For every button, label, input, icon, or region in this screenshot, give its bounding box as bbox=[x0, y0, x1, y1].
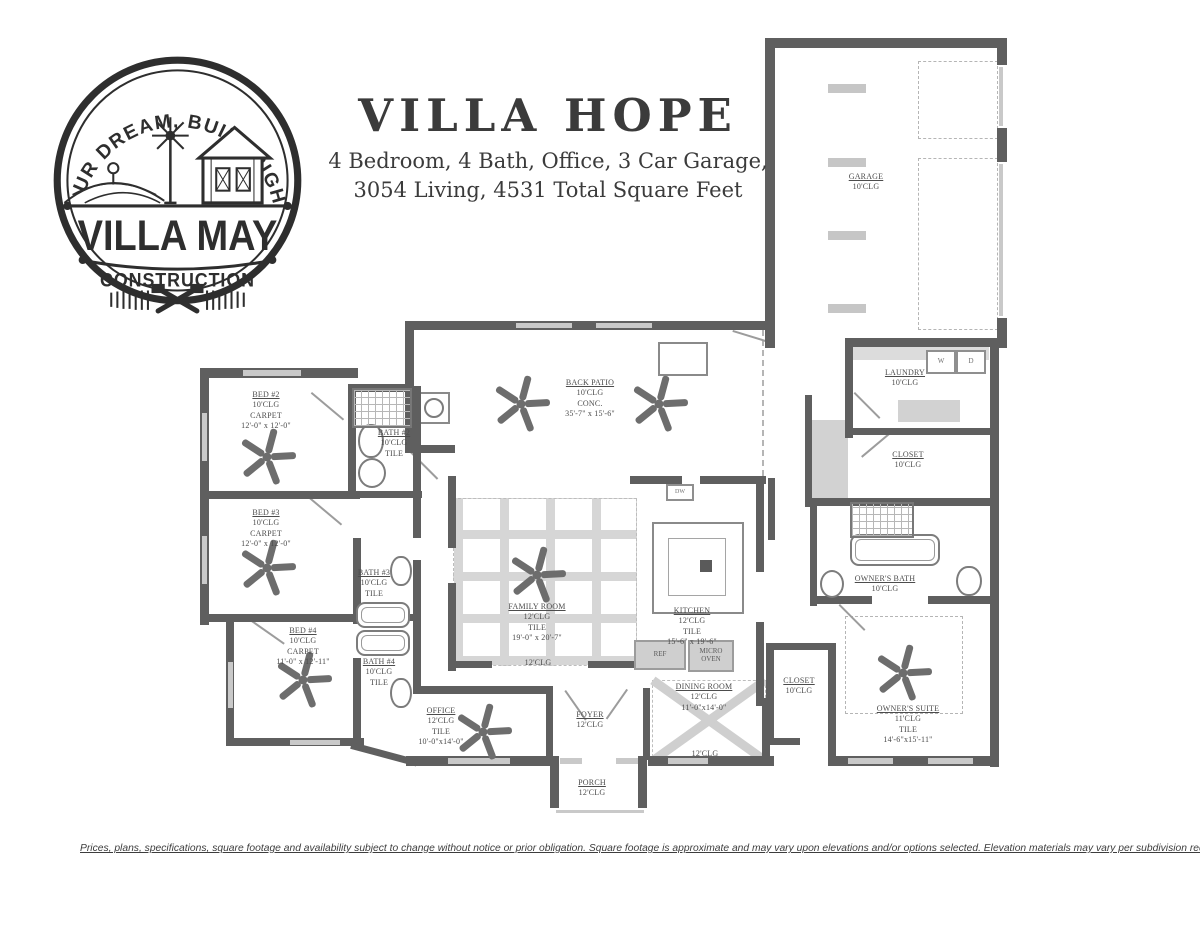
hall-ceiling-label: 12'CLG bbox=[508, 658, 568, 668]
wall-segment bbox=[845, 338, 853, 438]
dashed-outline bbox=[918, 158, 998, 330]
room-name: CLOSET bbox=[863, 450, 953, 460]
wall-segment bbox=[762, 698, 770, 760]
wall-segment bbox=[765, 38, 1007, 48]
wall-segment bbox=[766, 643, 836, 650]
wall-segment bbox=[413, 492, 421, 538]
garage-ceiling-beam bbox=[828, 158, 866, 167]
room-name: BACK PATIO bbox=[538, 378, 642, 388]
door-swing-line bbox=[854, 392, 881, 419]
banner-bolt-left bbox=[79, 256, 87, 264]
laundry-folding-counter bbox=[898, 400, 960, 422]
wall-segment bbox=[200, 491, 360, 499]
room-detail: CARPET bbox=[216, 529, 316, 539]
window-marker bbox=[556, 810, 644, 813]
wall-segment bbox=[448, 661, 492, 668]
window-marker bbox=[290, 740, 340, 745]
room-detail: 10'CLG bbox=[358, 438, 430, 448]
room-detail: TILE bbox=[358, 449, 430, 459]
room-label-bath4: BATH #4 10'CLG TILE bbox=[348, 657, 410, 688]
villa-may-logo: YOUR DREAM, BUILT RIGHT. bbox=[50, 50, 305, 315]
room-detail: 11'CLG bbox=[848, 714, 968, 724]
room-name: BATH #4 bbox=[348, 657, 410, 667]
wall-segment bbox=[638, 756, 647, 808]
room-name: OFFICE bbox=[404, 706, 478, 716]
water-heater-icon bbox=[424, 398, 444, 418]
wall-segment bbox=[405, 321, 775, 330]
wall-segment bbox=[997, 128, 1007, 162]
room-label-garage: GARAGE 10'CLG bbox=[826, 172, 906, 193]
wall-segment bbox=[448, 476, 456, 548]
room-detail: 10'CLG bbox=[835, 584, 935, 594]
logo-subbrand: CONSTRUCTION bbox=[100, 269, 255, 291]
room-detail: CONC. bbox=[538, 399, 642, 409]
wall-segment bbox=[805, 395, 812, 507]
room-label-dining: DINING ROOM 12'CLG 11'-0"x14'-0" bbox=[652, 682, 756, 713]
room-detail: 12'CLG bbox=[642, 616, 742, 626]
room-label-family-room: FAMILY ROOM 12'CLG TILE 19'-0" x 20'-7" bbox=[477, 602, 597, 644]
floor-plan-page: YOUR DREAM, BUILT RIGHT. bbox=[0, 0, 1200, 927]
room-label-bath3: BATH #3 10'CLG TILE bbox=[343, 568, 405, 599]
room-label-owners-bath: OWNER'S BATH 10'CLG bbox=[835, 574, 935, 595]
room-detail: 12'CLG bbox=[404, 716, 478, 726]
wall-segment bbox=[928, 596, 994, 604]
room-name: LAUNDRY bbox=[860, 368, 950, 378]
wall-segment bbox=[756, 622, 764, 706]
wall-segment bbox=[990, 347, 999, 767]
bathtub-icon bbox=[356, 602, 410, 628]
room-detail: CARPET bbox=[216, 411, 316, 421]
kitchen-sink-icon bbox=[700, 560, 712, 572]
wall-segment bbox=[810, 498, 817, 606]
window-marker bbox=[999, 67, 1003, 126]
room-label-office: OFFICE 12'CLG TILE 10'-0"x14'-0" bbox=[404, 706, 478, 748]
room-detail: 10'CLG bbox=[216, 518, 316, 528]
room-label-owners-suite: OWNER'S SUITE 11'CLG TILE 14'-6"x15'-11" bbox=[848, 704, 968, 746]
wall-segment bbox=[756, 476, 764, 572]
room-detail: 10'CLG bbox=[768, 686, 830, 696]
wall-segment bbox=[810, 596, 872, 604]
room-detail: TILE bbox=[348, 678, 410, 688]
ref-label: REF bbox=[654, 651, 667, 659]
wall-segment bbox=[768, 478, 775, 540]
room-detail: 10'CLG bbox=[863, 460, 953, 470]
room-detail: 11'-0" x 12'-11" bbox=[253, 657, 353, 667]
room-detail: 35'-7" x 15'-6" bbox=[538, 409, 642, 419]
room-detail: 10'CLG bbox=[348, 667, 410, 677]
room-detail: 10'CLG bbox=[860, 378, 950, 388]
dryer-box: D bbox=[956, 350, 986, 374]
room-detail: 14'-6"x15'-11" bbox=[848, 735, 968, 745]
window-marker bbox=[516, 323, 572, 328]
room-name: OWNER'S BATH bbox=[835, 574, 935, 584]
patio-island bbox=[658, 342, 708, 376]
room-name: CLOSET bbox=[768, 676, 830, 686]
room-label-bed3: BED #3 10'CLG CARPET 12'-0" x 12'-0" bbox=[216, 508, 316, 550]
wall-segment bbox=[845, 338, 1005, 347]
window-marker bbox=[928, 758, 973, 764]
room-label-bath2: BATH #2 10'CLG TILE bbox=[358, 428, 430, 459]
room-detail: 19'-0" x 20'-7" bbox=[477, 633, 597, 643]
wall-segment bbox=[828, 738, 836, 766]
room-name: BED #4 bbox=[253, 626, 353, 636]
room-label-foyer: FOYER 12'CLG bbox=[555, 710, 625, 731]
wall-segment bbox=[852, 428, 992, 435]
window-marker bbox=[243, 370, 301, 376]
garage-ceiling-beam bbox=[828, 304, 866, 313]
room-label-porch: PORCH 12'CLG bbox=[557, 778, 627, 799]
room-detail: TILE bbox=[404, 727, 478, 737]
room-detail: TILE bbox=[343, 589, 405, 599]
room-detail: 10'CLG bbox=[538, 388, 642, 398]
room-detail: 10'-0"x14'-0" bbox=[404, 737, 478, 747]
oven-label: OVEN bbox=[701, 656, 720, 664]
window-marker bbox=[596, 323, 652, 328]
dashed-outline bbox=[918, 61, 998, 139]
room-detail: 11'-0"x14'-0" bbox=[652, 703, 756, 713]
dashed-line bbox=[762, 330, 764, 476]
room-name: FOYER bbox=[555, 710, 625, 720]
window-marker bbox=[228, 662, 233, 708]
room-name: BED #2 bbox=[216, 390, 316, 400]
subtitle-line2: 3054 Living, 4531 Total Square Feet bbox=[354, 178, 743, 202]
mud-bench bbox=[812, 420, 848, 498]
toilet-icon bbox=[956, 566, 982, 596]
room-detail: 12'CLG bbox=[652, 692, 756, 702]
ceiling-fan-icon bbox=[872, 642, 934, 704]
bathtub-icon bbox=[356, 630, 410, 656]
dw-label: DW bbox=[675, 489, 685, 496]
plan-header: VILLA HOPE 4 Bedroom, 4 Bath, Office, 3 … bbox=[318, 92, 778, 204]
room-label-bed4: BED #4 10'CLG CARPET 11'-0" x 12'-11" bbox=[253, 626, 353, 668]
wall-segment bbox=[413, 560, 421, 688]
room-detail: TILE bbox=[642, 627, 742, 637]
room-name: BATH #2 bbox=[358, 428, 430, 438]
sink-icon bbox=[358, 458, 386, 488]
room-detail: 10'CLG bbox=[216, 400, 316, 410]
wall-segment bbox=[448, 583, 456, 671]
room-name: KITCHEN bbox=[642, 606, 742, 616]
dishwasher-box: DW bbox=[666, 484, 694, 501]
washer-label: W bbox=[938, 358, 945, 366]
room-detail: TILE bbox=[477, 623, 597, 633]
room-label-laundry: LAUNDRY 10'CLG bbox=[860, 368, 950, 389]
wall-segment bbox=[997, 38, 1007, 65]
window-marker bbox=[616, 758, 638, 764]
room-detail: 10'CLG bbox=[253, 636, 353, 646]
window-marker bbox=[848, 758, 893, 764]
plan-subtitle: 4 Bedroom, 4 Bath, Office, 3 Car Garage,… bbox=[318, 147, 778, 204]
wall-segment bbox=[413, 686, 553, 694]
room-name: BATH #3 bbox=[343, 568, 405, 578]
ceiling-fan-icon bbox=[506, 544, 568, 606]
wall-segment bbox=[630, 476, 682, 484]
room-detail: TILE bbox=[848, 725, 968, 735]
shower-icon bbox=[850, 502, 914, 538]
room-name: OWNER'S SUITE bbox=[848, 704, 968, 714]
room-label-bed2: BED #2 10'CLG CARPET 12'-0" x 12'-0" bbox=[216, 390, 316, 432]
window-marker bbox=[202, 536, 207, 584]
room-name: DINING ROOM bbox=[652, 682, 756, 692]
room-detail: 12'CLG bbox=[508, 658, 568, 668]
room-detail: 12'-0" x 12'-0" bbox=[216, 539, 316, 549]
plan-title: VILLA HOPE bbox=[318, 92, 778, 139]
entry-ceiling-label: 12'CLG bbox=[675, 749, 735, 759]
room-name: FAMILY ROOM bbox=[477, 602, 597, 612]
room-name: GARAGE bbox=[826, 172, 906, 182]
band-bolt-left bbox=[63, 202, 71, 210]
room-detail: 12'CLG bbox=[477, 612, 597, 622]
room-detail: 10'CLG bbox=[343, 578, 405, 588]
subtitle-line1: 4 Bedroom, 4 Bath, Office, 3 Car Garage, bbox=[328, 149, 767, 173]
dryer-label: D bbox=[968, 358, 973, 366]
shower-icon bbox=[352, 388, 412, 428]
room-detail: 12'CLG bbox=[555, 720, 625, 730]
bathtub-icon bbox=[850, 534, 940, 566]
room-detail: 12'-0" x 12'-0" bbox=[216, 421, 316, 431]
room-detail: CARPET bbox=[253, 647, 353, 657]
room-detail: 12'CLG bbox=[557, 788, 627, 798]
wall-segment bbox=[348, 491, 422, 498]
garage-ceiling-beam bbox=[828, 231, 866, 240]
room-name: PORCH bbox=[557, 778, 627, 788]
disclaimer-text: Prices, plans, specifications, square fo… bbox=[80, 843, 1142, 854]
wall-segment bbox=[546, 688, 553, 760]
room-label-back-patio: BACK PATIO 10'CLG CONC. 35'-7" x 15'-6" bbox=[538, 378, 642, 420]
room-name: BED #3 bbox=[216, 508, 316, 518]
window-marker bbox=[560, 758, 582, 764]
wall-segment bbox=[643, 688, 650, 760]
room-label-laundry-closet: CLOSET 10'CLG bbox=[863, 450, 953, 471]
window-marker bbox=[999, 164, 1003, 316]
garage-ceiling-beam bbox=[828, 84, 866, 93]
wall-segment bbox=[588, 661, 634, 668]
room-detail: 12'CLG bbox=[675, 749, 735, 759]
logo-brand: VILLA MAY bbox=[78, 212, 278, 260]
kitchen-island-counter bbox=[668, 538, 726, 596]
wall-segment bbox=[200, 614, 363, 622]
band-bolt-right bbox=[284, 202, 292, 210]
room-label-kitchen: KITCHEN 12'CLG TILE 15'-6" x 19'-6" bbox=[642, 606, 742, 648]
room-detail: 10'CLG bbox=[826, 182, 906, 192]
room-label-owners-closet: CLOSET 10'CLG bbox=[768, 676, 830, 697]
ceiling-fan-icon bbox=[236, 426, 298, 488]
window-marker bbox=[202, 413, 207, 461]
wall-segment bbox=[766, 738, 800, 745]
room-detail: 15'-6" x 19'-6" bbox=[642, 637, 742, 647]
banner-bolt-right bbox=[268, 256, 276, 264]
